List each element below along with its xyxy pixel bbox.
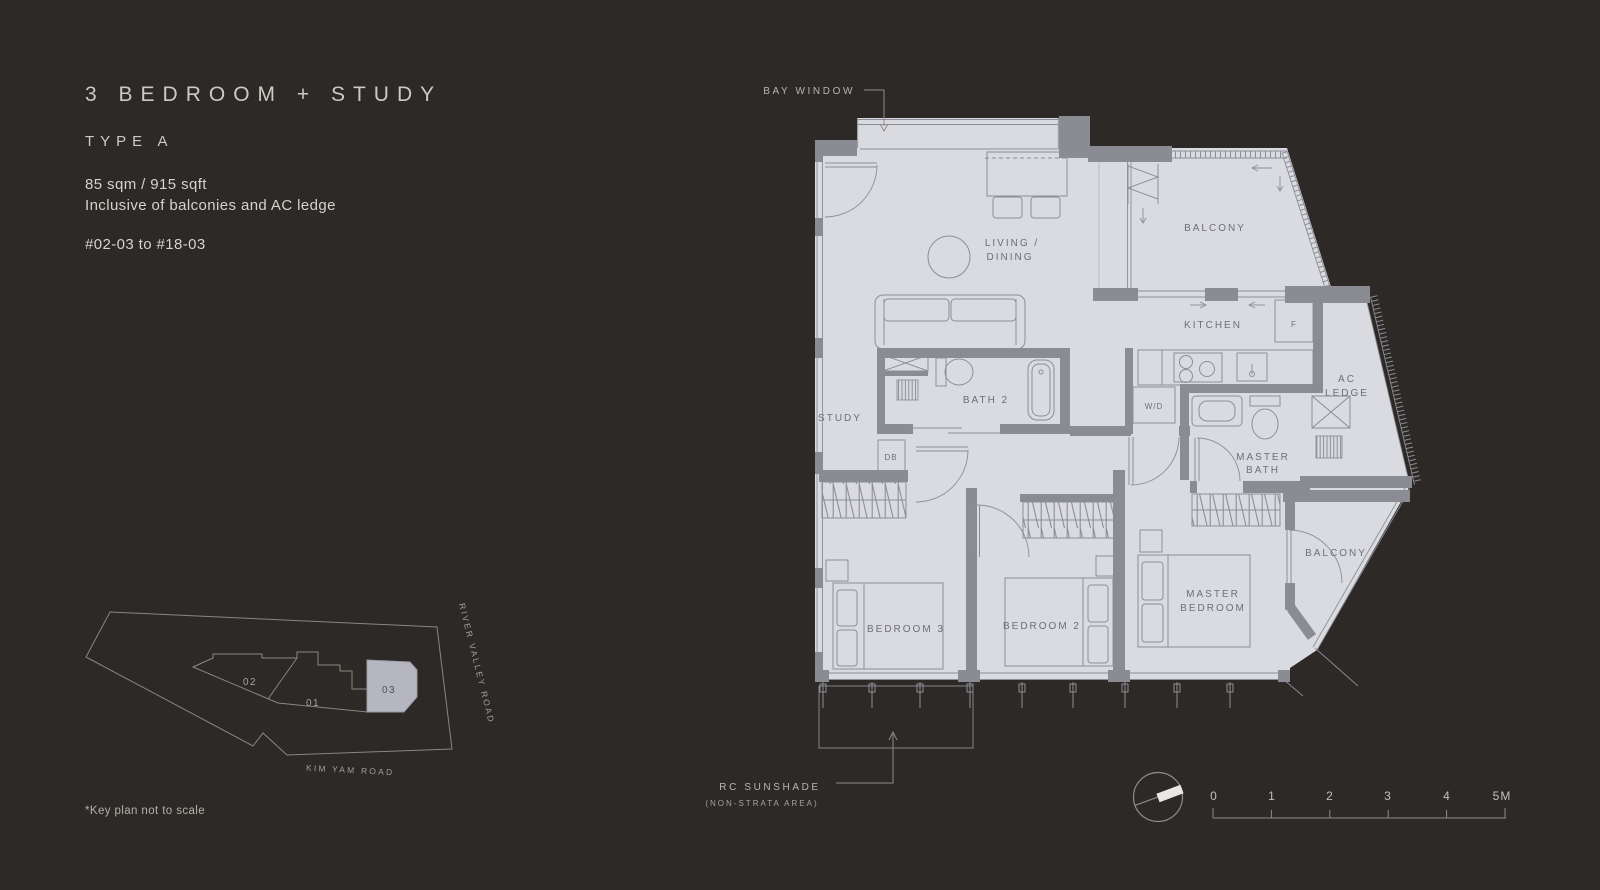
bedroom2-label: BEDROOM 2	[1003, 621, 1081, 632]
scale-bar: 0 1 2 3 4 5M	[1210, 789, 1511, 818]
kitchen-label: KITCHEN	[1184, 320, 1242, 331]
rc-sunshade-sublabel: (NON-STRATA AREA)	[705, 799, 818, 808]
scale-tick-2: 2	[1326, 789, 1334, 803]
keyplan-unit-02-label: 02	[243, 677, 257, 688]
rc-sunshade-callout: RC SUNSHADE (NON-STRATA AREA)	[705, 732, 897, 808]
scale-tick-4: 4	[1443, 789, 1451, 803]
scale-tick-5m: 5M	[1493, 789, 1512, 803]
area-inclusive-label: Inclusive of balconies and AC ledge	[85, 197, 336, 214]
scale-tick-3: 3	[1384, 789, 1392, 803]
unit-divider	[268, 658, 297, 699]
scale-tick-1: 1	[1268, 789, 1276, 803]
wd-label: W/D	[1145, 402, 1164, 411]
scale-tick-0: 0	[1210, 789, 1218, 803]
north-arrow-icon	[1134, 773, 1183, 822]
unit-type-label: TYPE A	[85, 133, 174, 150]
floor-plan: LIVING / DINING BALCONY KITCHEN F STUDY …	[705, 86, 1418, 808]
bay-window-label: BAY WINDOW	[763, 86, 855, 97]
bedroom3-label: BEDROOM 3	[867, 624, 945, 635]
study-label: STUDY	[818, 413, 862, 424]
key-plan: 02 01 03 RIVER VALLEY ROAD KIM YAM ROAD …	[85, 602, 497, 817]
balcony-low-label: BALCONY	[1305, 548, 1367, 559]
area-label: 85 sqm / 915 sqft	[85, 176, 207, 193]
bath2-label: BATH 2	[963, 395, 1009, 406]
fridge-label: F	[1291, 320, 1297, 329]
balcony-top-label: BALCONY	[1184, 223, 1246, 234]
floorplan-canvas: 3 BEDROOM + STUDY TYPE A 85 sqm / 915 sq…	[0, 0, 1600, 890]
stack-range-label: #02-03 to #18-03	[85, 236, 206, 253]
master-bath-label-1: MASTER	[1236, 452, 1290, 463]
floorplan-sheet: 3 BEDROOM + STUDY TYPE A 85 sqm / 915 sq…	[0, 0, 1600, 890]
keyplan-note: *Key plan not to scale	[85, 805, 205, 817]
master-bedroom-label-2: BEDROOM	[1180, 603, 1246, 614]
living-label-1: LIVING /	[985, 238, 1039, 249]
kim-yam-road-label: KIM YAM ROAD	[306, 763, 395, 778]
db-label: DB	[884, 453, 897, 462]
ac-ledge-label-2: LEDGE	[1325, 388, 1369, 399]
keyplan-unit-03-label: 03	[382, 685, 396, 696]
rc-sunshade-label: RC SUNSHADE	[719, 782, 820, 793]
living-label-2: DINING	[987, 252, 1034, 263]
river-valley-road-label: RIVER VALLEY ROAD	[457, 602, 497, 725]
ac-ledge-label-1: AC	[1338, 374, 1356, 385]
keyplan-unit-01-label: 01	[306, 698, 320, 709]
master-bedroom-label-1: MASTER	[1186, 589, 1240, 600]
master-bath-label-2: BATH	[1246, 465, 1280, 476]
title-block: 3 BEDROOM + STUDY TYPE A 85 sqm / 915 sq…	[85, 83, 442, 253]
page-title: 3 BEDROOM + STUDY	[85, 83, 442, 106]
